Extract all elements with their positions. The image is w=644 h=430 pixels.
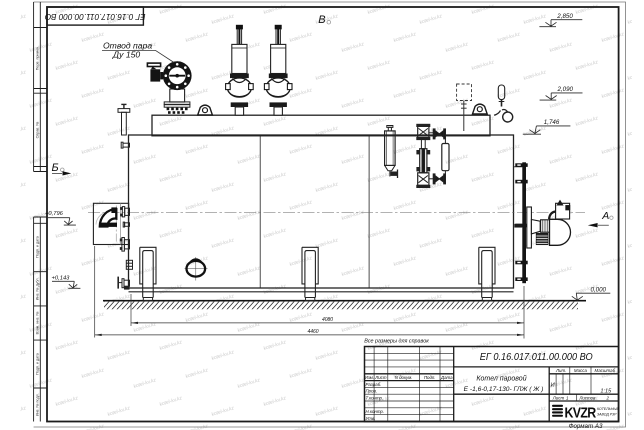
svg-text:Формат А3: Формат А3 bbox=[569, 423, 603, 430]
svg-text:KVZR: KVZR bbox=[565, 405, 597, 421]
svg-text:N докум.: N докум. bbox=[395, 375, 413, 380]
svg-text:ЕГ 0.16.017.011.00.000 ВО: ЕГ 0.16.017.011.00.000 ВО bbox=[480, 352, 593, 363]
svg-text:Перв. примен.: Перв. примен. bbox=[35, 46, 39, 71]
svg-text:Пров.: Пров. bbox=[366, 389, 378, 394]
svg-text:Е -1,6-0,17-130- ГЛЖ ( Ж ): Е -1,6-0,17-130- ГЛЖ ( Ж ) bbox=[464, 386, 544, 393]
svg-text:Разраб.: Разраб. bbox=[366, 382, 382, 387]
svg-text:В: В bbox=[318, 14, 325, 26]
svg-text:Масштаб: Масштаб bbox=[595, 368, 616, 373]
svg-text:2,850: 2,850 bbox=[556, 13, 573, 20]
svg-text:Подп. и дата: Подп. и дата bbox=[35, 352, 39, 375]
svg-text:Справ. №: Справ. № bbox=[35, 122, 39, 139]
svg-text:Н.контр.: Н.контр. bbox=[366, 409, 385, 414]
svg-text:И: И bbox=[551, 382, 555, 388]
svg-text:КОТЕЛЬНЫЙ: КОТЕЛЬНЫЙ bbox=[597, 407, 620, 411]
svg-text:0,000: 0,000 bbox=[591, 287, 607, 294]
svg-text:Лист: Лист bbox=[552, 396, 565, 401]
svg-text:Подп. и дата: Подп. и дата bbox=[35, 235, 39, 258]
svg-text:Инв. № дубл.: Инв. № дубл. bbox=[35, 277, 39, 300]
svg-text:А: А bbox=[601, 210, 609, 222]
svg-text:Изм.: Изм. bbox=[365, 375, 374, 380]
svg-text:Б: Б bbox=[52, 162, 59, 174]
svg-text:1:15: 1:15 bbox=[600, 389, 612, 395]
svg-text:+0,796: +0,796 bbox=[45, 211, 64, 217]
svg-text:Ду 150: Ду 150 bbox=[112, 50, 140, 60]
svg-text:ЕГ 0.16.017.011.00.000 ВО: ЕГ 0.16.017.011.00.000 ВО bbox=[44, 12, 145, 21]
svg-text:Т.контр.: Т.контр. bbox=[366, 396, 384, 401]
svg-text:4080: 4080 bbox=[322, 317, 333, 323]
svg-text:Все размеры для справок: Все размеры для справок bbox=[364, 339, 429, 345]
svg-text:Листов: Листов bbox=[578, 396, 596, 401]
svg-text:Масса: Масса bbox=[574, 368, 588, 373]
svg-text:1,746: 1,746 bbox=[544, 119, 560, 126]
svg-text:4460: 4460 bbox=[307, 329, 318, 335]
svg-text:Взам. инв. №: Взам. инв. № bbox=[35, 312, 39, 335]
svg-text:Лит.: Лит. bbox=[555, 368, 566, 373]
svg-text:Утв.: Утв. bbox=[366, 416, 376, 421]
svg-text:2,090: 2,090 bbox=[557, 86, 574, 93]
svg-text:+0,143: +0,143 bbox=[52, 275, 71, 281]
svg-text:Лист: Лист bbox=[374, 375, 387, 380]
svg-text:Инв. № подл.: Инв. № подл. bbox=[35, 393, 39, 416]
svg-text:2: 2 bbox=[606, 396, 610, 401]
svg-text:Дата: Дата bbox=[440, 375, 453, 380]
svg-text:Подп.: Подп. bbox=[424, 375, 436, 380]
svg-text:Котел паровой: Котел паровой bbox=[476, 375, 526, 383]
svg-text:ЗАВОД РЗР: ЗАВОД РЗР bbox=[597, 412, 617, 416]
